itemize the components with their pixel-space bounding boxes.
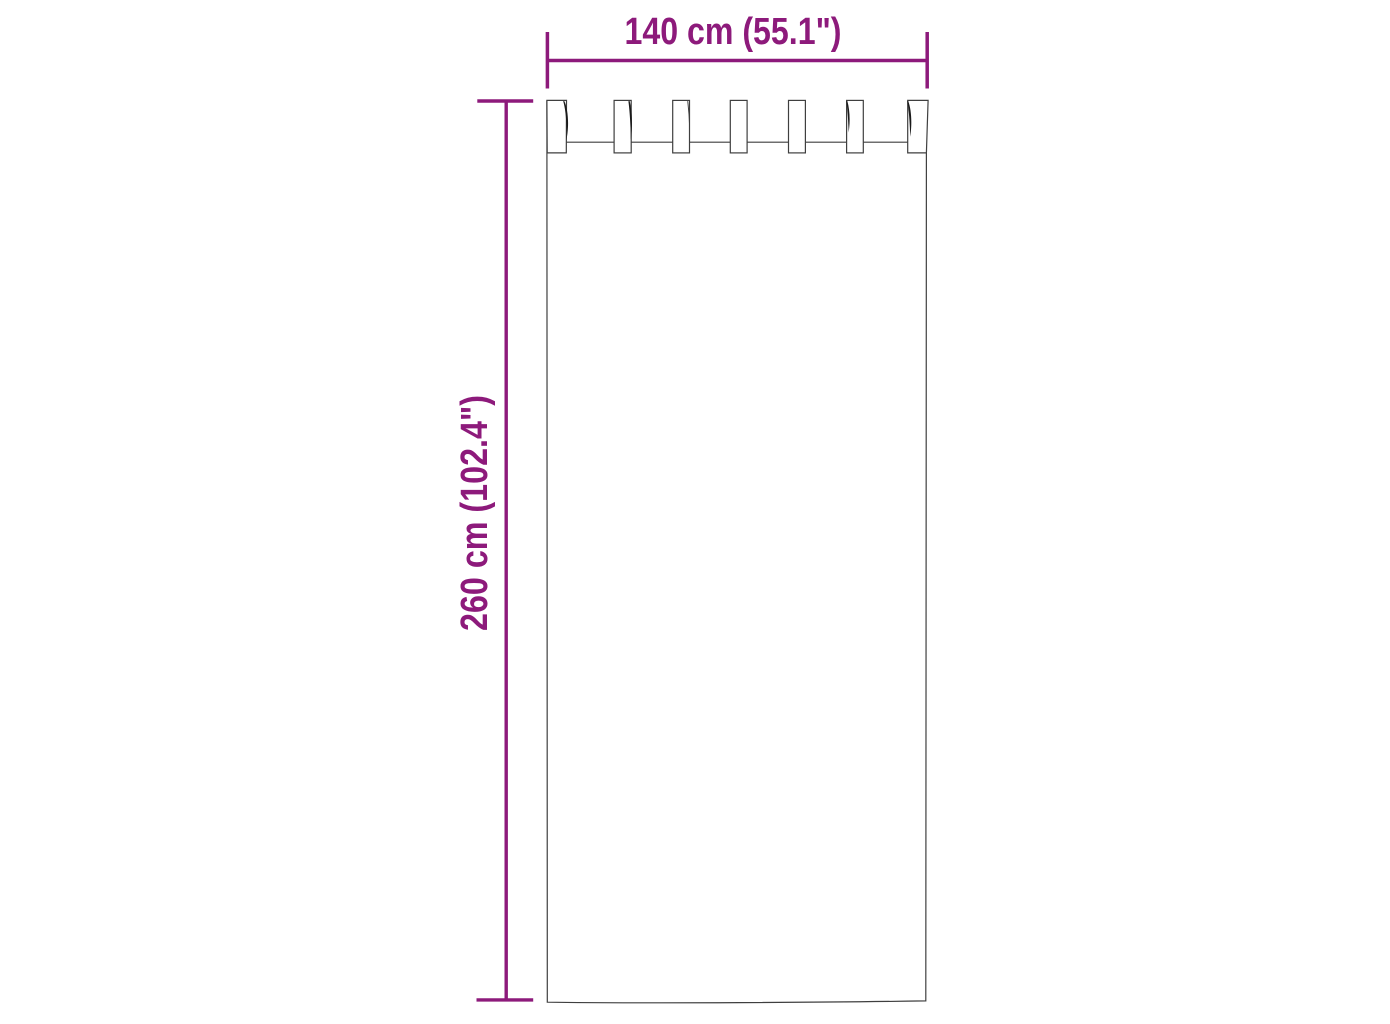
svg-text:140 cm (55.1"): 140 cm (55.1") [625,11,842,53]
svg-text:260 cm (102.4"): 260 cm (102.4") [454,395,496,631]
